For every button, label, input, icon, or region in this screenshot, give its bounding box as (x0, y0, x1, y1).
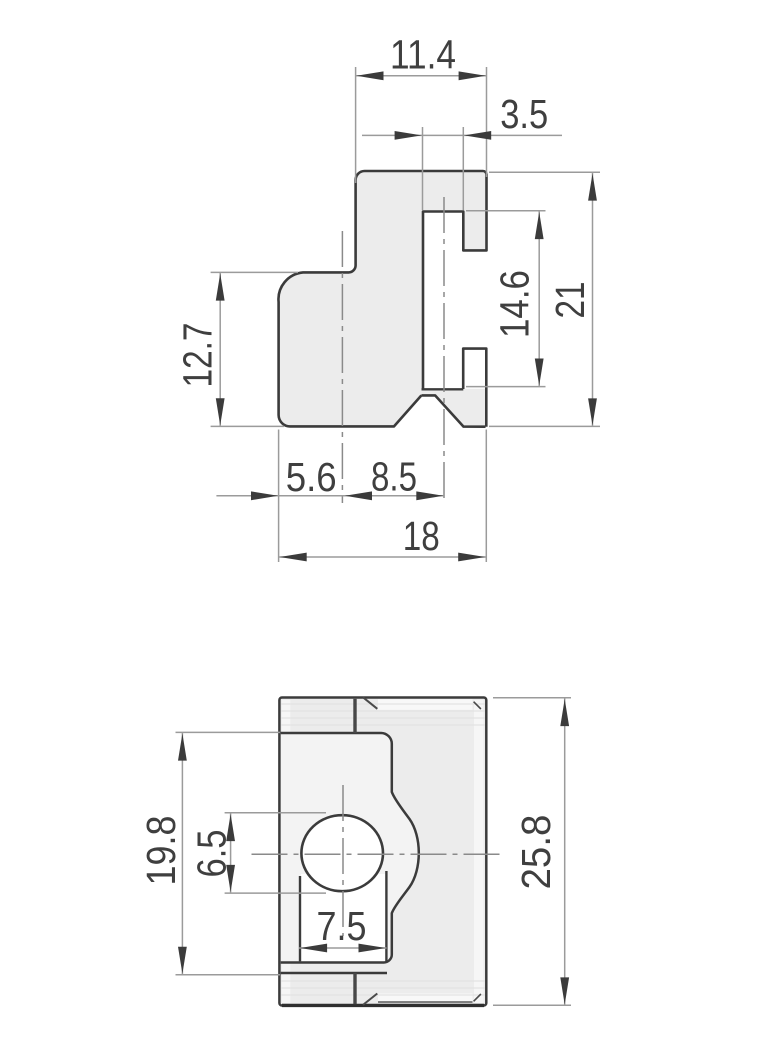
svg-text:8.5: 8.5 (371, 453, 417, 499)
svg-text:6.5: 6.5 (189, 830, 235, 878)
svg-text:25.8: 25.8 (513, 815, 559, 890)
svg-text:21: 21 (547, 282, 593, 319)
svg-text:19.8: 19.8 (138, 816, 184, 886)
svg-text:5.6: 5.6 (286, 454, 337, 500)
svg-text:3.5: 3.5 (500, 91, 548, 137)
svg-text:18: 18 (403, 513, 440, 559)
svg-text:14.6: 14.6 (492, 270, 538, 338)
svg-text:7.5: 7.5 (317, 903, 367, 949)
svg-text:12.7: 12.7 (175, 323, 221, 388)
svg-text:11.4: 11.4 (390, 31, 456, 77)
